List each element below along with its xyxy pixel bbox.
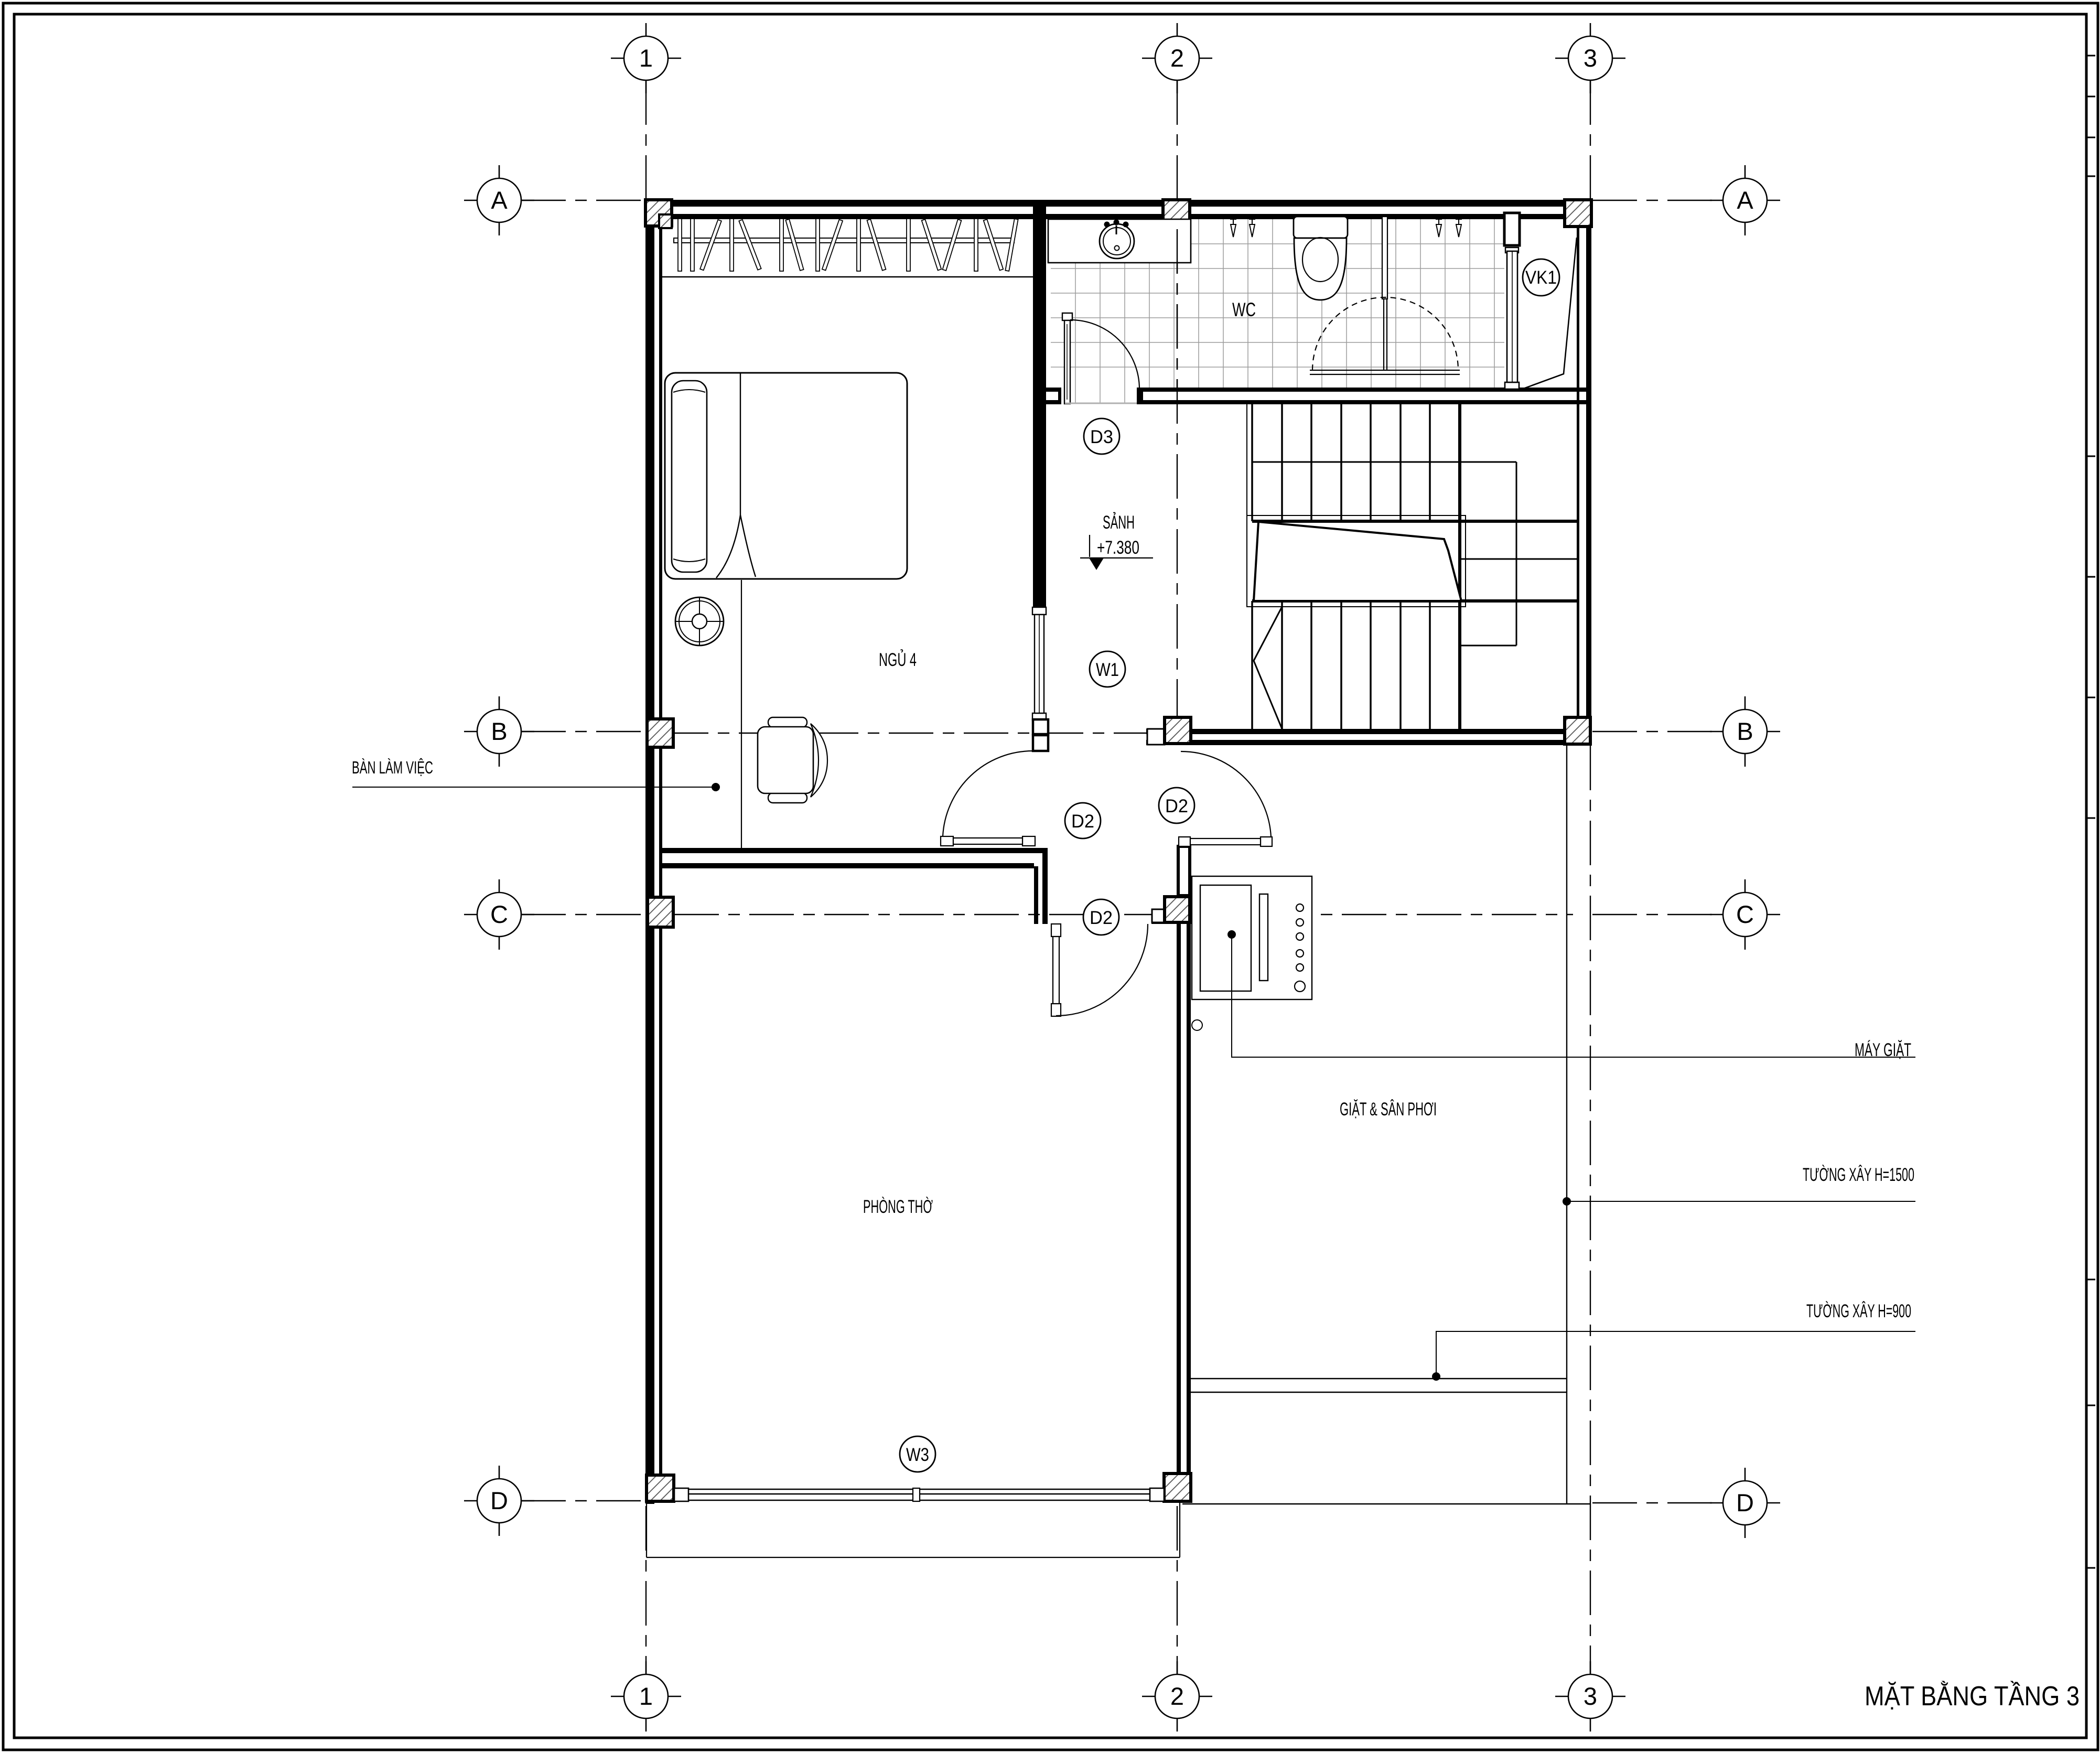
svg-text:C: C [1736, 900, 1754, 928]
svg-text:D2: D2 [1071, 811, 1094, 832]
svg-text:+7.380: +7.380 [1097, 537, 1139, 558]
svg-text:B: B [491, 717, 507, 745]
svg-text:2: 2 [1170, 44, 1184, 72]
svg-text:1: 1 [639, 44, 653, 72]
svg-text:2: 2 [1170, 1682, 1184, 1710]
svg-text:A: A [1737, 186, 1753, 214]
svg-text:TƯỜNG XÂY H=900: TƯỜNG XÂY H=900 [1806, 1301, 1911, 1321]
svg-text:W1: W1 [1096, 660, 1119, 680]
svg-text:3: 3 [1584, 44, 1597, 72]
svg-text:TƯỜNG XÂY H=1500: TƯỜNG XÂY H=1500 [1803, 1165, 1914, 1185]
svg-text:NGỦ 4: NGỦ 4 [879, 649, 917, 670]
svg-text:SẢNH: SẢNH [1103, 512, 1135, 533]
svg-text:GIẶT & SÂN PHƠI: GIẶT & SÂN PHƠI [1340, 1099, 1437, 1120]
svg-text:BÀN LÀM VIỆC: BÀN LÀM VIỆC [352, 758, 433, 777]
svg-text:D2: D2 [1090, 908, 1113, 928]
svg-text:MẶT BẰNG TẦNG 3: MẶT BẰNG TẦNG 3 [1865, 1681, 2080, 1712]
svg-text:C: C [490, 900, 508, 928]
svg-text:VK1: VK1 [1525, 267, 1557, 288]
svg-text:PHÒNG THỜ: PHÒNG THỜ [863, 1197, 933, 1217]
svg-text:WC: WC [1232, 299, 1256, 320]
svg-text:D: D [490, 1487, 508, 1514]
svg-text:A: A [491, 186, 508, 214]
svg-text:W3: W3 [906, 1445, 929, 1465]
svg-text:D3: D3 [1090, 427, 1113, 447]
svg-text:D: D [1736, 1489, 1754, 1517]
svg-text:1: 1 [639, 1682, 653, 1710]
svg-text:D2: D2 [1165, 796, 1188, 816]
svg-text:B: B [1737, 717, 1753, 745]
svg-text:3: 3 [1584, 1682, 1597, 1710]
